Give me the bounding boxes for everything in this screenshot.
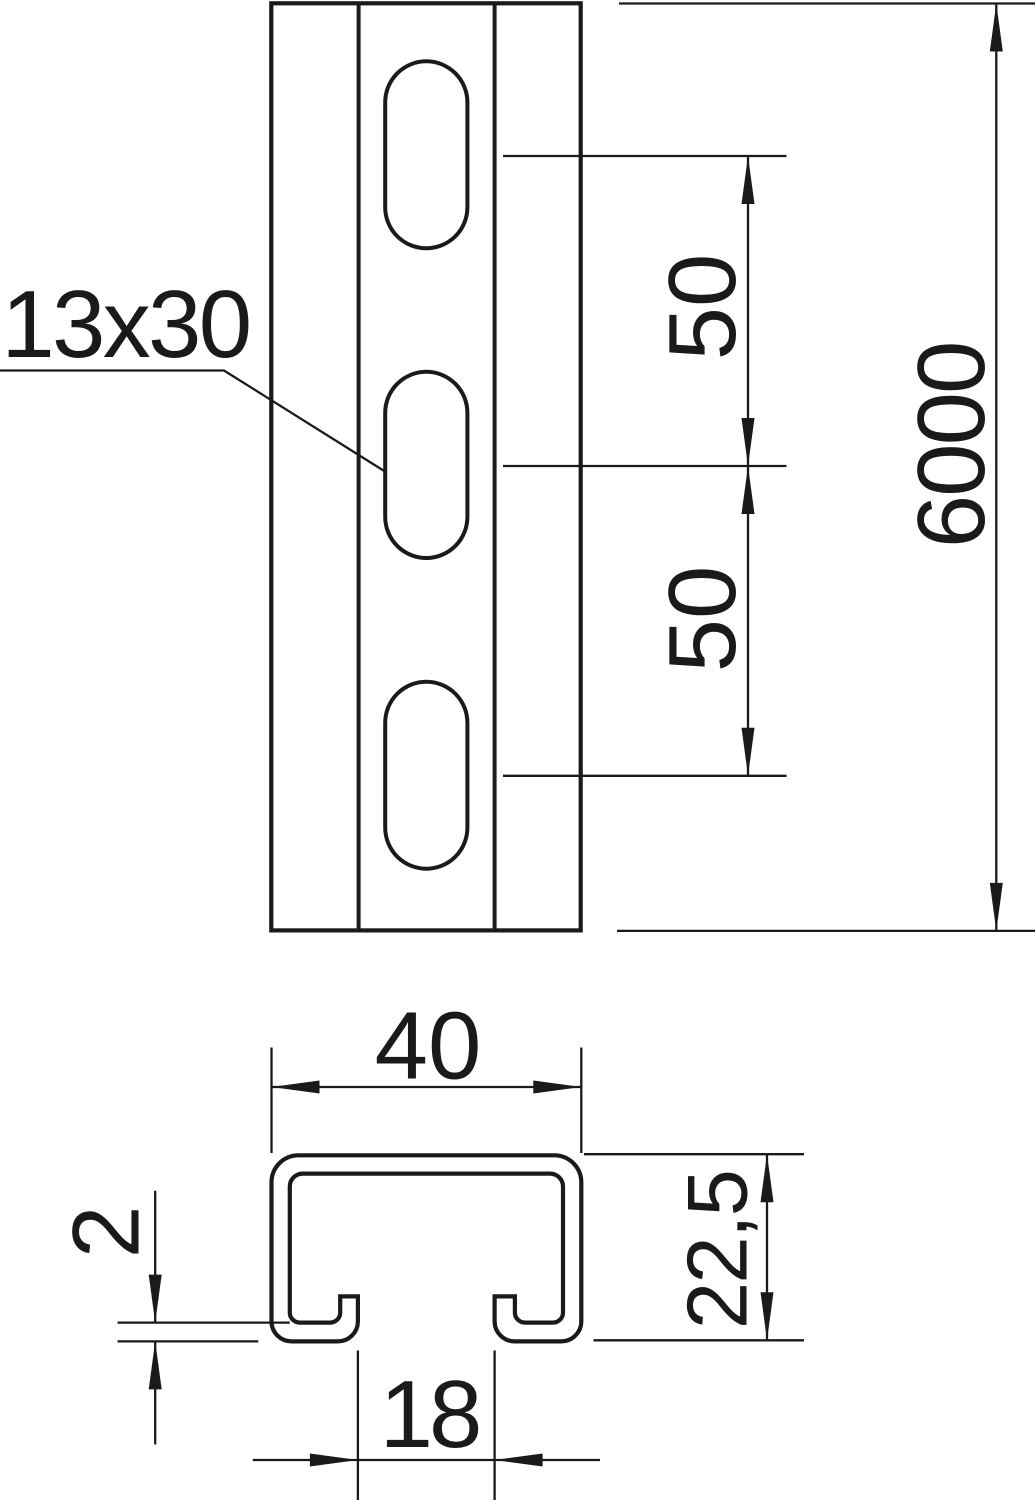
- svg-text:6000: 6000: [898, 343, 1005, 549]
- svg-text:2: 2: [54, 1205, 160, 1258]
- svg-text:40: 40: [375, 992, 482, 1099]
- svg-text:18: 18: [380, 1361, 479, 1468]
- svg-text:13x30: 13x30: [1, 271, 249, 378]
- svg-text:50: 50: [649, 566, 756, 673]
- svg-text:50: 50: [649, 254, 756, 361]
- svg-text:22,5: 22,5: [670, 1171, 765, 1329]
